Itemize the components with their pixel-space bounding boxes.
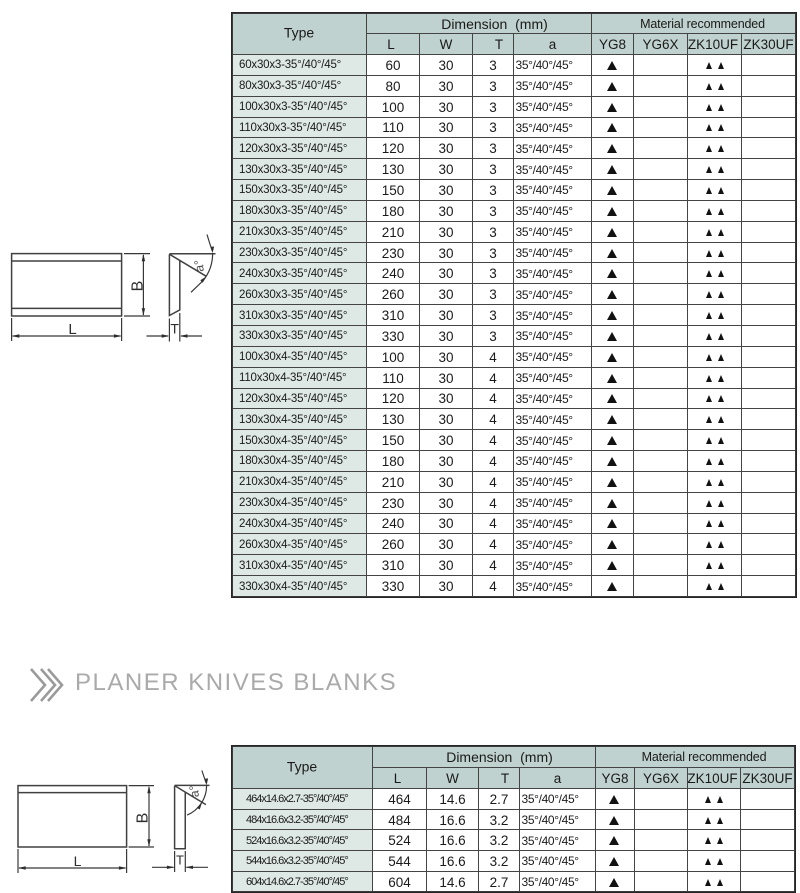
- svg-text:L: L: [74, 853, 82, 869]
- svg-text:B: B: [130, 281, 147, 292]
- svg-text:a°: a°: [192, 259, 207, 272]
- svg-text:T: T: [170, 321, 179, 337]
- svg-text:T: T: [176, 853, 184, 868]
- svg-text:B: B: [135, 813, 152, 824]
- svg-text:a°: a°: [187, 785, 202, 798]
- svg-text:L: L: [68, 321, 76, 338]
